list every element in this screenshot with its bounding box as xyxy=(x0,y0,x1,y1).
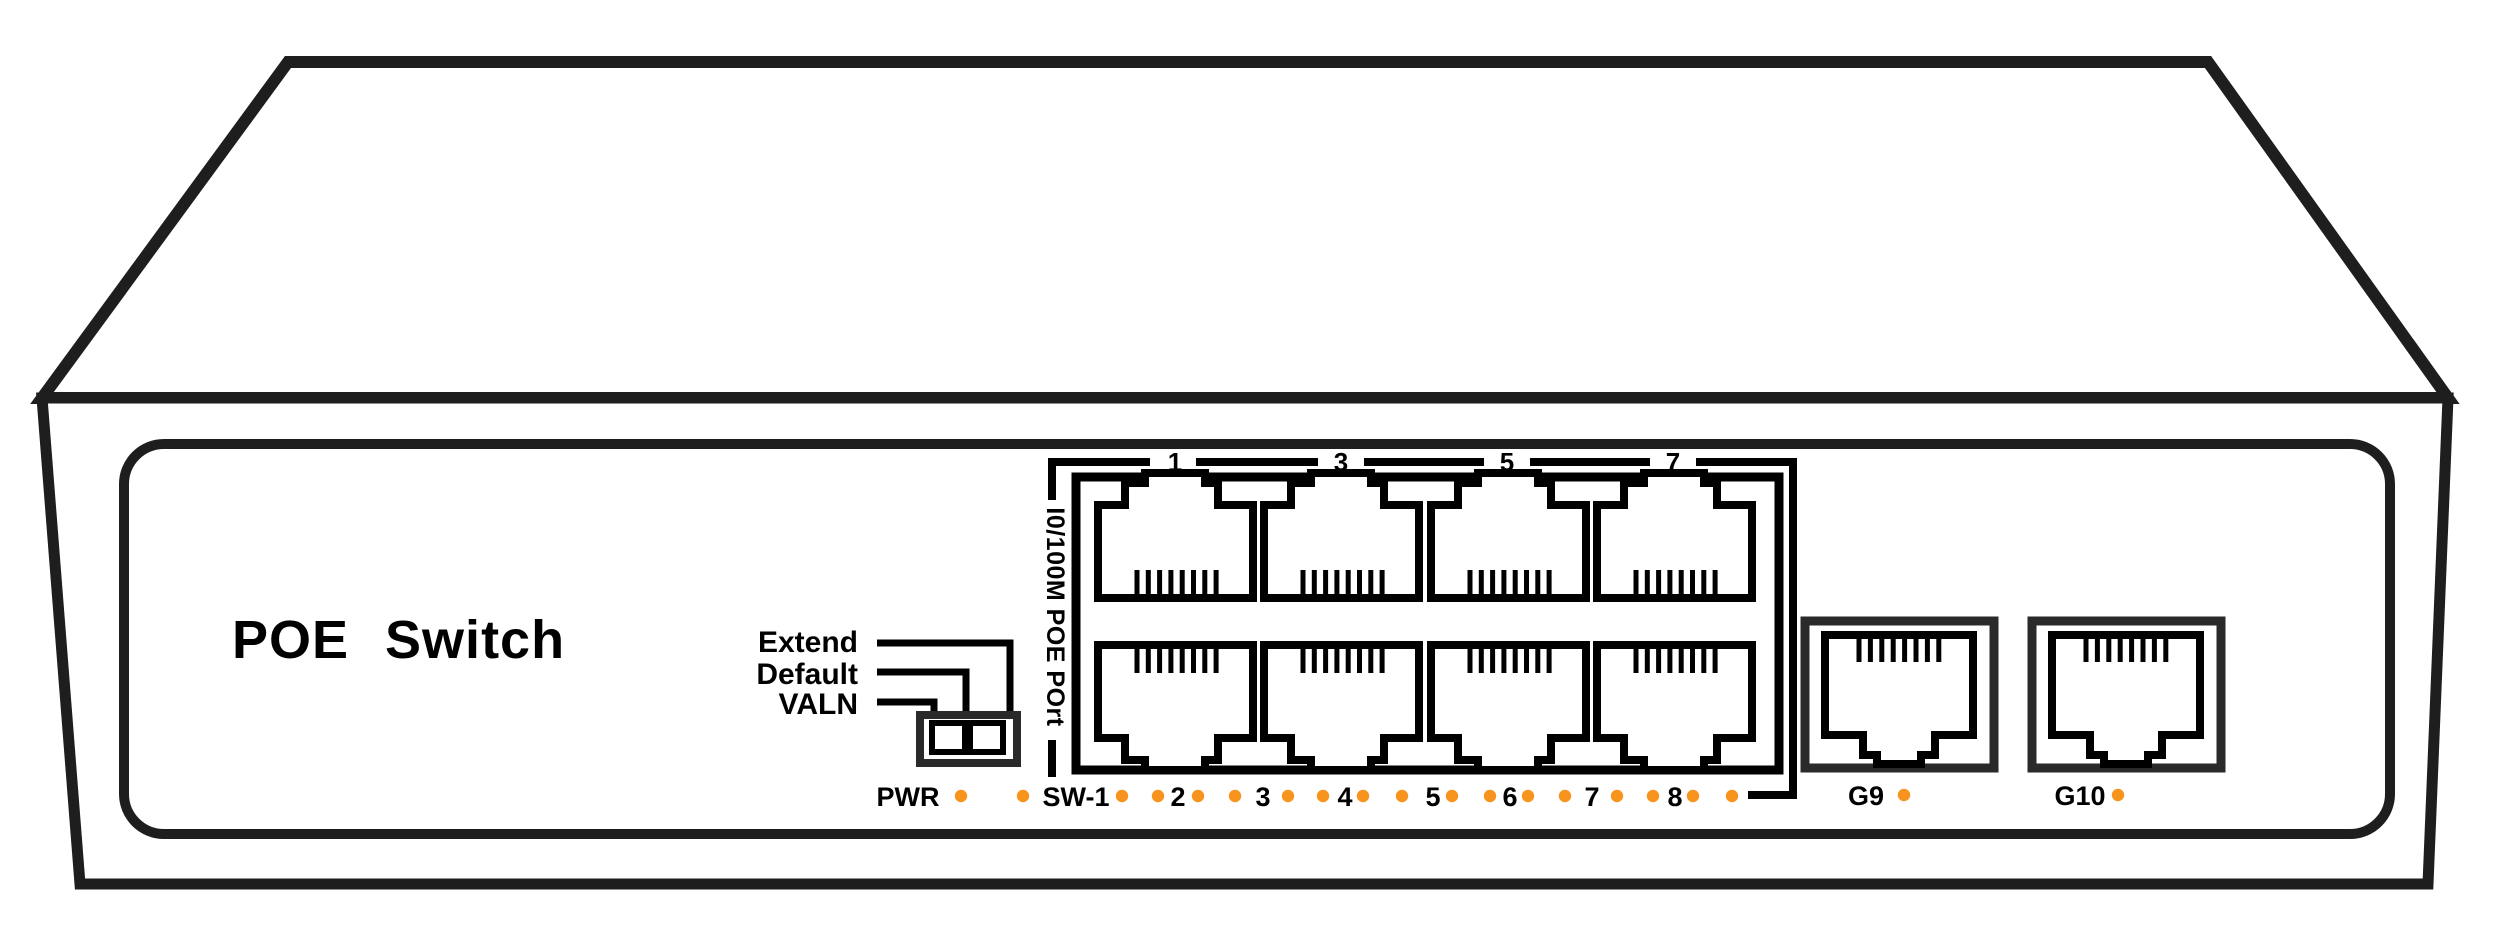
led-dot xyxy=(1229,790,1241,802)
led-dot xyxy=(1687,790,1699,802)
led-label-2: 2 xyxy=(1170,782,1185,812)
led-dot xyxy=(1357,790,1369,802)
led-label-5: 5 xyxy=(1425,782,1440,812)
led-dot xyxy=(1152,790,1164,802)
led-dot xyxy=(1192,790,1204,802)
dip-switch-toggle-1 xyxy=(932,723,965,752)
led-dot xyxy=(1282,790,1294,802)
led-dot xyxy=(1559,790,1571,802)
led-dot xyxy=(1484,790,1496,802)
led-dot xyxy=(955,790,967,802)
led-dot xyxy=(1611,790,1623,802)
poe-port-group-side-label: I0/100M POE POrt xyxy=(1041,507,1069,726)
dip-switch-toggle-2 xyxy=(970,723,1003,752)
dip-label-default: Default xyxy=(756,658,858,691)
led-dot xyxy=(1017,790,1029,802)
dip-label-extend: Extend xyxy=(758,626,858,659)
led-label-sw-1: SW-1 xyxy=(1043,782,1110,812)
led-label-4: 4 xyxy=(1337,782,1352,812)
led-dot xyxy=(1116,790,1128,802)
led-dot xyxy=(1647,790,1659,802)
chassis-top-face xyxy=(42,62,2448,398)
led-dot xyxy=(2112,789,2124,801)
led-dot xyxy=(1726,790,1738,802)
led-label-7: 7 xyxy=(1584,782,1599,812)
led-dot xyxy=(1396,790,1408,802)
uplink-port-label: G9 xyxy=(1848,781,1884,811)
poe-switch-diagram: POE Switch Extend Default VALN 1 3 5 7 I… xyxy=(0,0,2495,928)
dip-label-valn: VALN xyxy=(779,688,858,721)
device-title: POE Switch xyxy=(232,610,565,670)
led-dot xyxy=(1522,790,1534,802)
uplink-port-label: G10 xyxy=(2054,781,2105,811)
led-label-3: 3 xyxy=(1255,782,1270,812)
led-label-pwr: PWR xyxy=(877,782,940,812)
led-label-6: 6 xyxy=(1502,782,1517,812)
dip-switch xyxy=(920,715,1017,763)
led-dot xyxy=(1898,789,1910,801)
led-dot xyxy=(1446,790,1458,802)
led-dot xyxy=(1317,790,1329,802)
led-label-8: 8 xyxy=(1667,782,1682,812)
